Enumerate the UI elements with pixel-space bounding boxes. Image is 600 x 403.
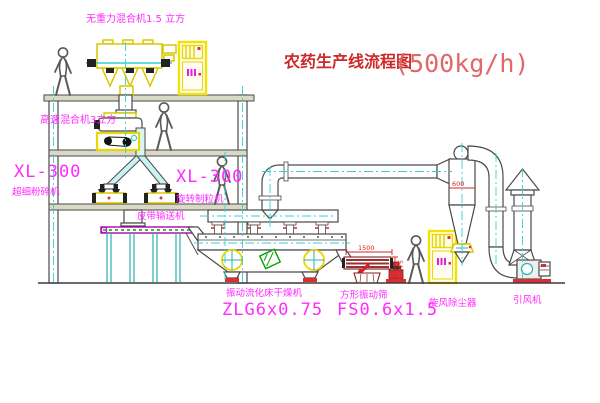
- gravity-free-mixer: [86, 40, 176, 95]
- diagram-title: 农药生产线流程图: [283, 52, 412, 71]
- person-ground: [408, 236, 424, 283]
- label-dryer: 振动流化床干燥机: [226, 287, 303, 299]
- rotary-granulator-left: [92, 184, 127, 203]
- person-floor2: [156, 103, 172, 150]
- label-granulator: 旋转制粒机: [176, 193, 224, 205]
- label-high-speed-mixer: 高速混合机3立方: [40, 113, 116, 126]
- dim-screen-height: 545: [396, 260, 404, 272]
- person-roof: [55, 48, 71, 95]
- label-granulator-model: XL-300: [176, 167, 243, 187]
- label-screen-model: FS0.6x1.5: [337, 300, 438, 320]
- label-pulverizer-model: XL-300: [14, 162, 81, 182]
- belt-conveyor: [101, 227, 212, 282]
- label-cyclone: 旋风除尘器: [429, 297, 477, 309]
- fluid-bed-dryer: [198, 210, 353, 282]
- production-line-diagram: 无重力混合机1.5 立方 农药生产线流程图 (500kg/h) 高速混合机3立方…: [0, 0, 600, 403]
- label-gravity-mixer: 无重力混合机1.5 立方: [86, 12, 185, 25]
- induced-draft-fan: [513, 260, 551, 283]
- flow-diagram-canvas: 无重力混合机1.5 立方 农药生产线流程图 (500kg/h) 高速混合机3立方…: [0, 0, 600, 403]
- label-pulverizer: 超细粉碎机: [12, 186, 60, 198]
- control-cabinet-upper: [179, 42, 206, 94]
- label-belt-conveyor: 皮带输送机: [137, 210, 185, 222]
- dryer-feet: [224, 272, 318, 282]
- control-cabinet-lower: [429, 231, 456, 283]
- dim-cyclone-diameter: 600: [452, 180, 464, 188]
- dim-screen-length: 1500: [358, 244, 375, 252]
- label-fan: 引风机: [513, 294, 542, 306]
- y-split-pipe: [107, 156, 168, 184]
- diagram-title-capacity: (500kg/h): [394, 49, 529, 78]
- rotary-granulator-right: [144, 184, 179, 203]
- exhaust-duct: [259, 162, 437, 210]
- label-dryer-model: ZLG6x0.75: [222, 300, 323, 320]
- high-speed-mixer: [94, 95, 145, 158]
- exhaust-stack: [506, 169, 539, 265]
